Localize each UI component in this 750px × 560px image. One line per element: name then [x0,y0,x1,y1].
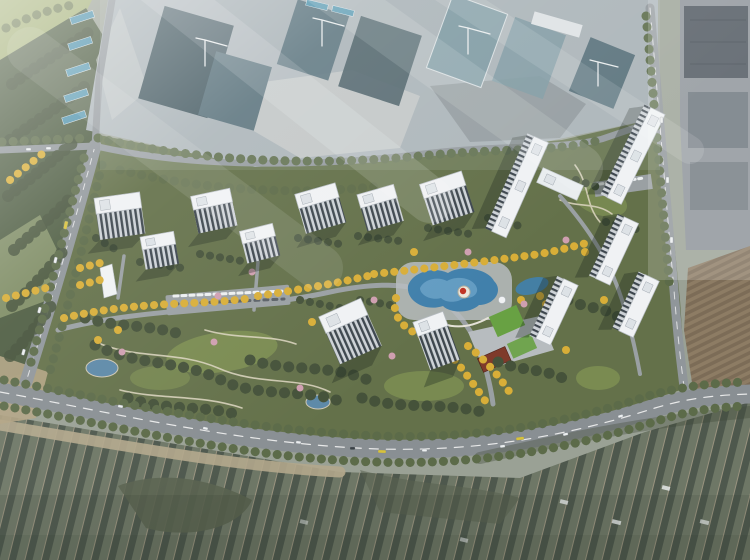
aerial-render-canvas [0,0,750,560]
atmosphere [0,0,750,560]
aerial-render [0,0,750,560]
corner-haze [0,0,750,560]
bottom-vignette-2 [0,535,750,560]
